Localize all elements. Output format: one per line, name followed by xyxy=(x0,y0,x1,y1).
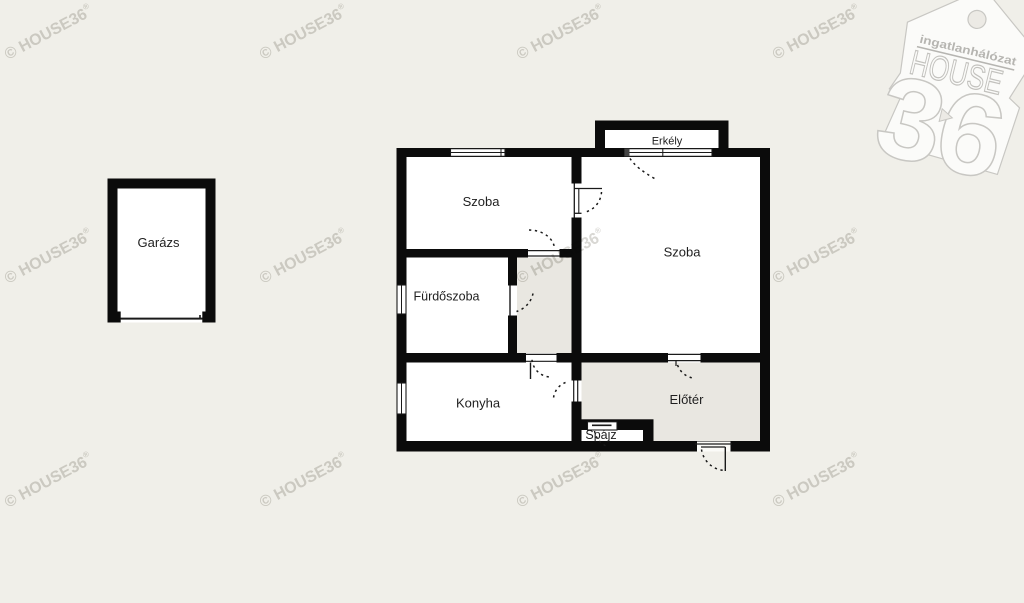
svg-text:Erkély: Erkély xyxy=(652,136,683,148)
svg-text:Előtér: Előtér xyxy=(670,392,705,407)
svg-text:Fürdőszoba: Fürdőszoba xyxy=(413,290,479,304)
svg-text:Garázs: Garázs xyxy=(138,235,180,250)
svg-text:Szoba: Szoba xyxy=(664,245,702,260)
svg-text:Szoba: Szoba xyxy=(463,194,501,209)
svg-text:Spájz: Spájz xyxy=(585,428,616,442)
svg-text:Konyha: Konyha xyxy=(456,396,501,411)
